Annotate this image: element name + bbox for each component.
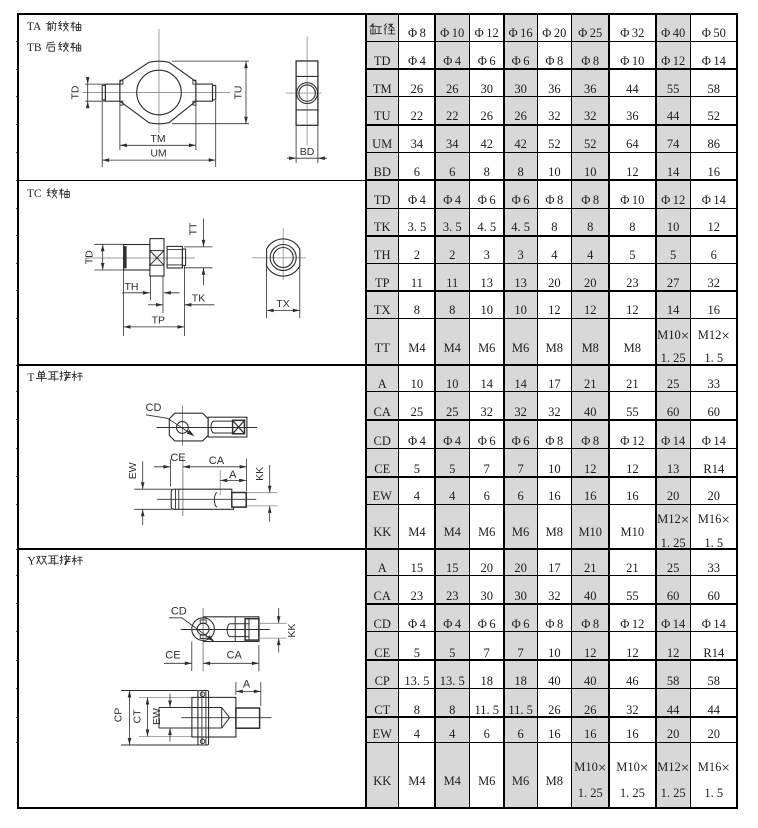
svg-text:TD: TD — [70, 85, 82, 99]
svg-text:TU: TU — [233, 86, 245, 100]
svg-text:KK: KK — [286, 624, 298, 638]
svg-text:CD: CD — [146, 402, 162, 414]
svg-text:CP: CP — [113, 708, 125, 723]
svg-text:BD: BD — [300, 146, 315, 158]
svg-text:TP: TP — [152, 315, 165, 327]
svg-text:T: T — [27, 372, 34, 384]
svg-text:TK: TK — [192, 293, 205, 305]
svg-text:CA: CA — [227, 650, 243, 662]
svg-text:CE: CE — [165, 650, 180, 662]
svg-text:KK: KK — [254, 467, 266, 481]
svg-text:A: A — [243, 679, 251, 691]
svg-text:EW: EW — [127, 462, 139, 479]
svg-text:TT: TT — [188, 222, 200, 235]
svg-text:TM: TM — [150, 133, 165, 145]
svg-text:TX: TX — [276, 298, 289, 310]
svg-text:TD: TD — [84, 250, 96, 264]
svg-text:Y: Y — [27, 556, 36, 568]
svg-text:TH: TH — [125, 281, 139, 293]
svg-text:EW: EW — [151, 708, 163, 725]
svg-text:CT: CT — [132, 709, 144, 724]
svg-text:TC: TC — [27, 188, 42, 200]
svg-text:CA: CA — [209, 455, 225, 467]
svg-text:CD: CD — [171, 606, 187, 618]
svg-text:TA: TA — [27, 21, 42, 33]
svg-text:A: A — [229, 469, 237, 481]
svg-text:UM: UM — [150, 148, 166, 160]
svg-text:TB: TB — [27, 42, 42, 54]
svg-text:CE: CE — [170, 452, 185, 464]
